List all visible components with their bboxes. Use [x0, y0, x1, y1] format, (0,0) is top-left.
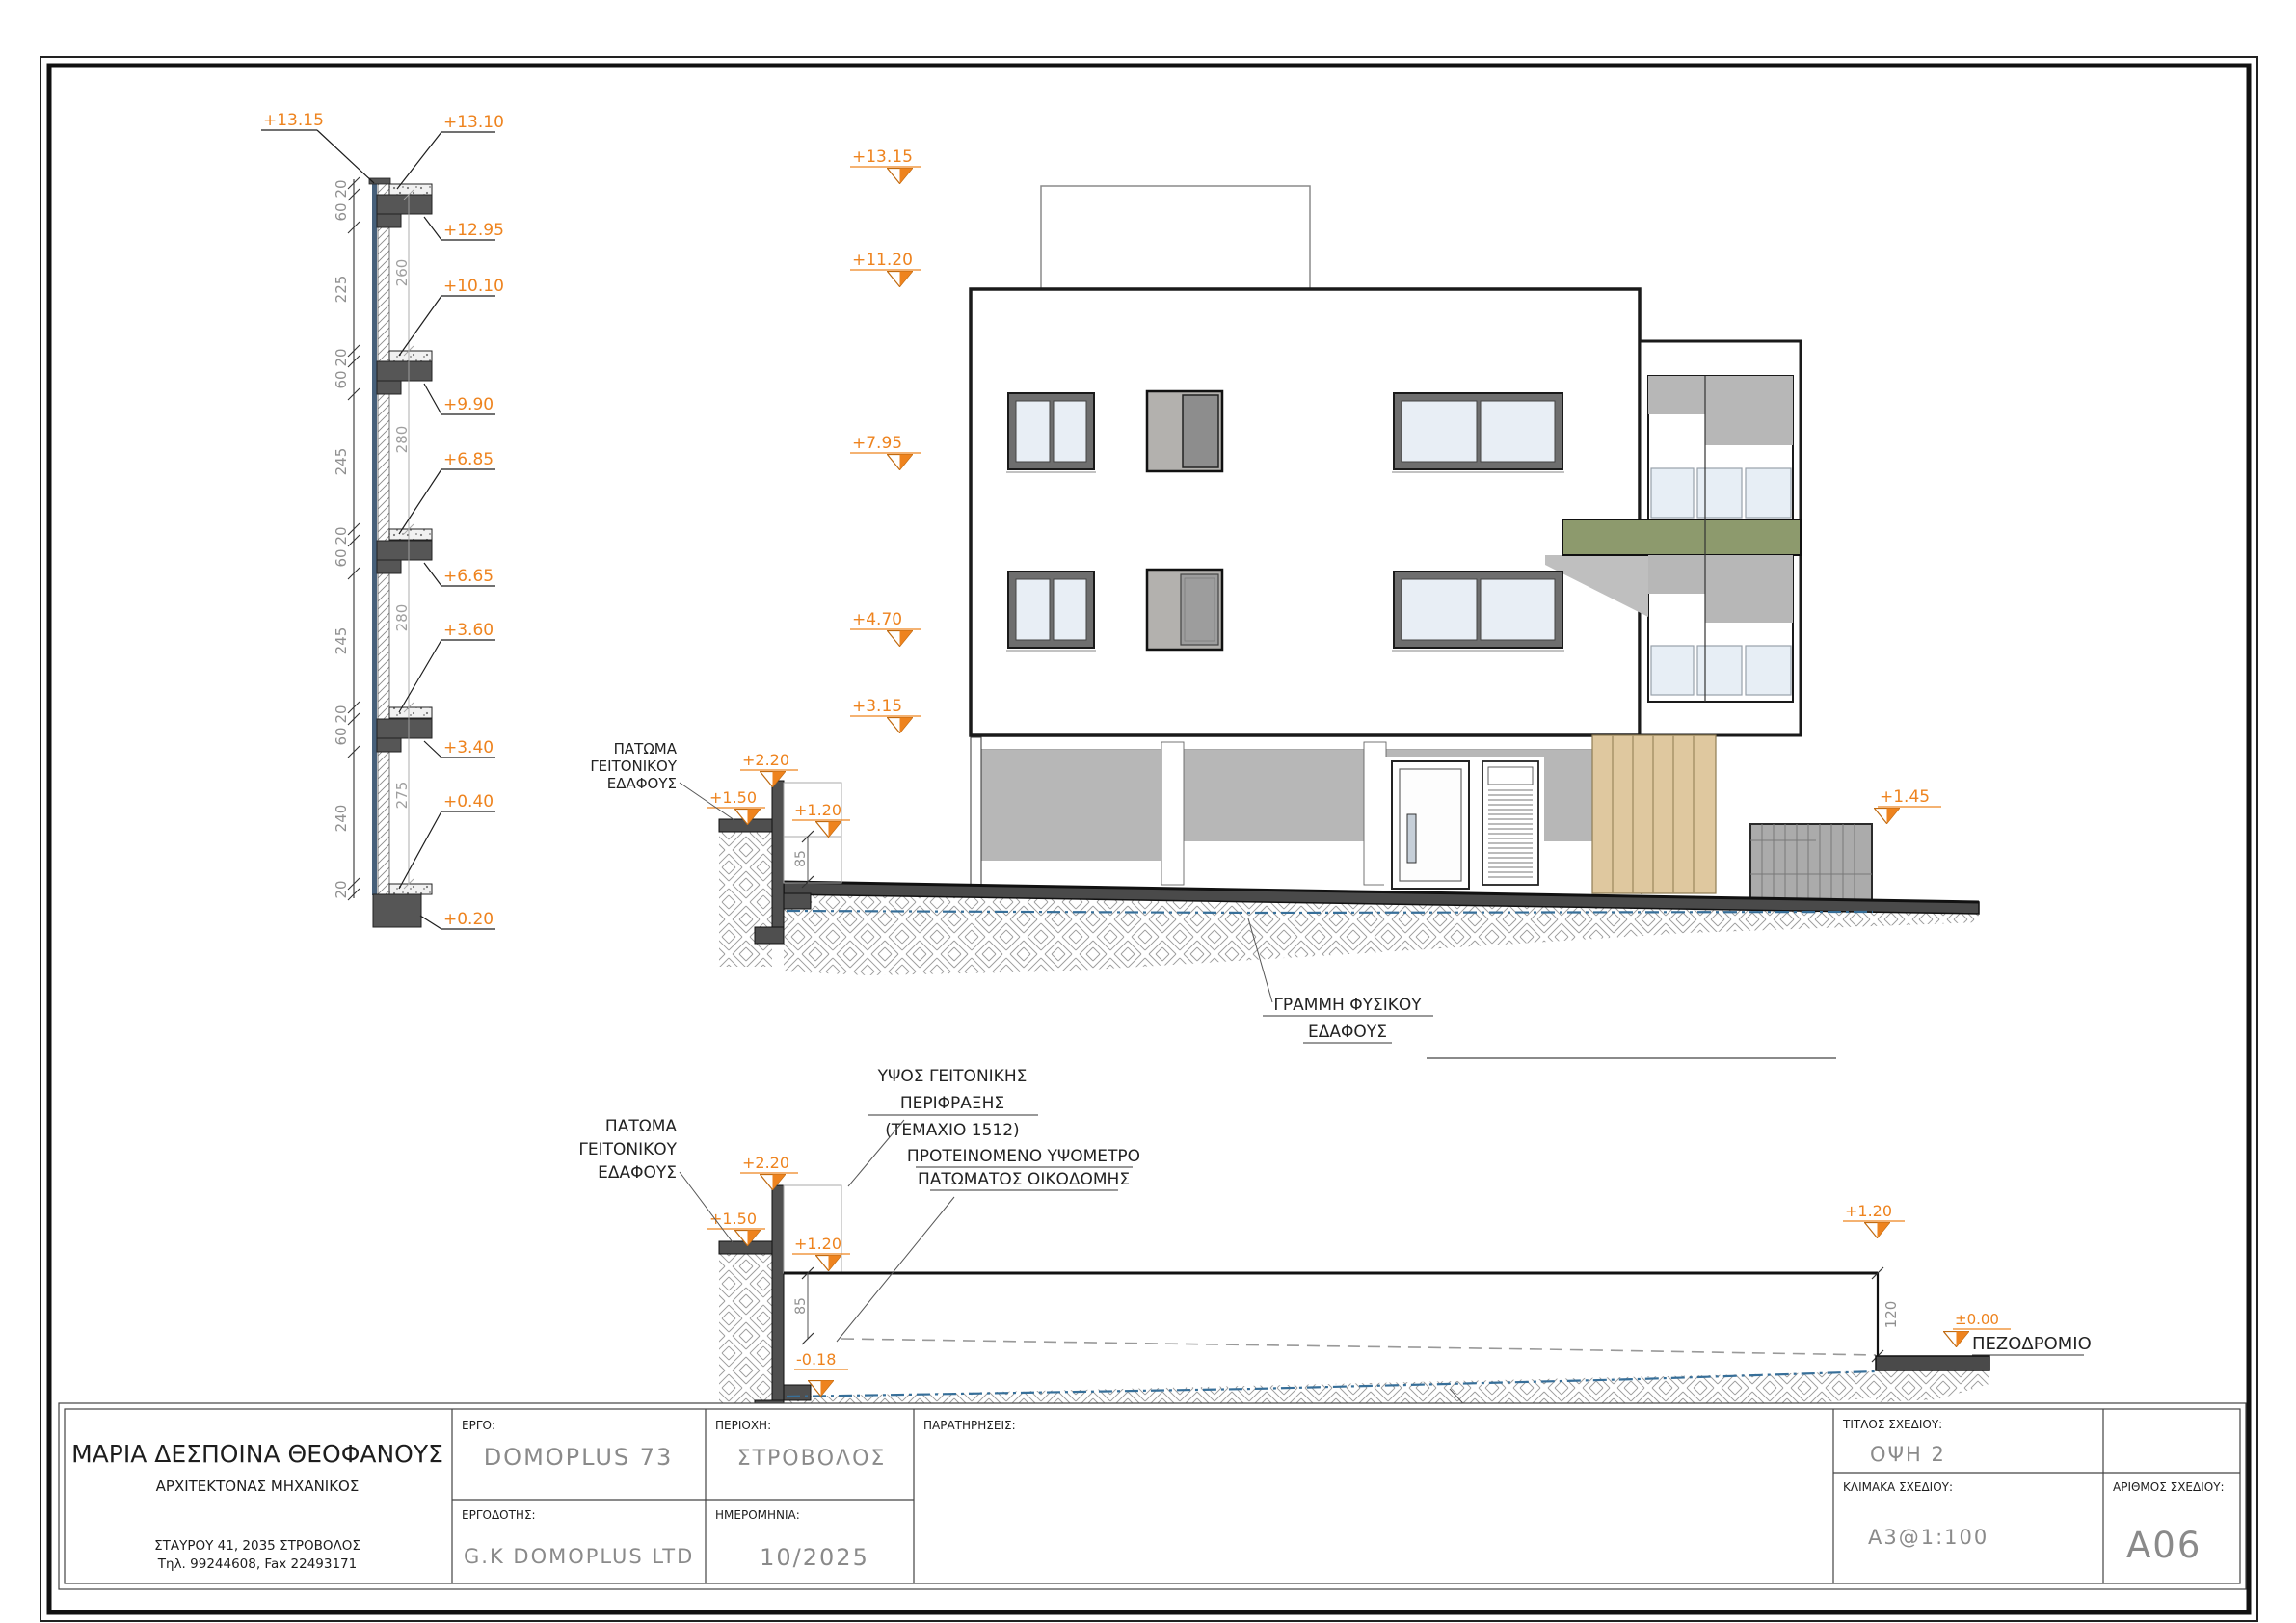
- proposed-ground-dashed-line: [841, 1339, 1876, 1355]
- section2-markers: +2.20 +1.50 +1.20 -0.18 +1.20 ±0.00: [707, 1154, 2011, 1397]
- dim-85: 85: [793, 1267, 814, 1344]
- level-flag-icon: [888, 631, 913, 647]
- main-facade: [971, 289, 1640, 735]
- balcony-divider-slab: [1562, 519, 1801, 555]
- window-lower-right: [1392, 572, 1564, 651]
- infill-wall: [981, 750, 1161, 861]
- annotation-text: ΕΔΑΦΟΥΣ: [1308, 1023, 1387, 1042]
- field-label: ΠΕΡΙΟΧΗ:: [715, 1419, 771, 1432]
- infill-wall: [1184, 750, 1364, 841]
- balcony-wall-panel: [1648, 376, 1705, 414]
- level-flag-icon: [816, 1256, 841, 1271]
- dim-text: 60: [333, 727, 350, 745]
- level-marker: +4.70: [852, 610, 902, 629]
- title-block: ΜΑΡΙΑ ΔΕΣΠΟΙΝΑ ΘΕΟΦΑΝΟΥΣ ΑΡΧΙΤΕΚΤΟΝΑΣ ΜΗ…: [59, 1403, 2246, 1589]
- column: [1364, 742, 1386, 885]
- notes-cell: ΠΑΡΑΤΗΡΗΣΕΙΣ:: [923, 1419, 1016, 1432]
- level-marker: +1.50: [709, 1210, 757, 1228]
- column: [1161, 742, 1184, 885]
- annotation-text: ΓΕΙΤΟΝΙΚΟΥ: [578, 1140, 677, 1159]
- level-callout: +12.95: [443, 221, 504, 240]
- entrance-door: [1392, 761, 1469, 889]
- louver-panel: [1482, 761, 1538, 885]
- dim-text: 20: [333, 705, 350, 723]
- architect-name: ΜΑΡΙΑ ΔΕΣΠΟΙΝΑ ΘΕΟΦΑΝΟΥΣ: [71, 1440, 443, 1468]
- balcony-wall-panel: [1705, 555, 1793, 623]
- level-marker: +1.45: [1880, 787, 1930, 807]
- client-name: G.K DOMOPLUS LTD: [464, 1545, 694, 1568]
- level-flag-icon: [1875, 809, 1900, 824]
- drawing-scale: A3@1:100: [1868, 1526, 1989, 1549]
- dim-text: 20: [333, 179, 350, 198]
- footing: [373, 894, 421, 927]
- balcony-glass-railing: [1651, 646, 1791, 695]
- drawing-sheet: 20 60 225 20 60 245 20 60 245 20 60 240 …: [0, 0, 2296, 1623]
- annotation-text: ΠΡΟΤΕΙΝΟΜΕΝΟ ΥΨΟΜΕΤΡΟ: [907, 1147, 1140, 1166]
- boundary-reference-box: [784, 783, 841, 883]
- level-callout: +6.85: [443, 450, 494, 469]
- label-ypsos-perifraksis: ΥΨΟΣ ΓΕΙΤΟΝΙΚΗΣ ΠΕΡΙΦΡΑΞΗΣ (ΤΕΜΑΧΙΟ 1512…: [848, 1067, 1038, 1186]
- label-proteinomeno-ypsometro: ΠΡΟΤΕΙΝΟΜΕΝΟ ΥΨΟΜΕΤΡΟ ΠΑΤΩΜΑΤΟΣ ΟΙΚΟΔΟΜΗ…: [837, 1147, 1140, 1342]
- dim-text: 20: [333, 526, 350, 545]
- level-callout: +10.10: [443, 277, 504, 296]
- level-callout: +0.40: [443, 792, 494, 811]
- balcony-glass-railing: [1651, 468, 1791, 518]
- elevation-drawing-a06: 20 60 225 20 60 245 20 60 245 20 60 240 …: [0, 0, 2296, 1623]
- architect-address: ΣΤΑΥΡΟΥ 41, 2035 ΣΤΡΟΒΟΛΟΣ: [154, 1538, 360, 1554]
- dim-text: 260: [393, 259, 411, 287]
- pilaster: [971, 737, 981, 885]
- window-upper-left: [1006, 393, 1096, 472]
- level-callout: +3.40: [443, 738, 494, 758]
- field-label: ΠΑΡΑΤΗΡΗΣΕΙΣ:: [923, 1419, 1016, 1432]
- architect-title: ΑΡΧΙΤΕΚΤΟΝΑΣ ΜΗΧΑΝΙΚΟΣ: [156, 1477, 360, 1495]
- architect-phone: Τηλ. 99244608, Fax 22493171: [157, 1556, 357, 1572]
- sidewalk-slab: [1876, 1356, 1989, 1370]
- level-marker: -0.18: [796, 1350, 836, 1369]
- building-elevation: +13.15 +11.20 +7.95 +4.70 +3.15 +1.45: [850, 147, 1941, 901]
- field-label: ΤΙΤΛΟΣ ΣΧΕΔΙΟΥ:: [1842, 1418, 1942, 1431]
- field-label: ΗΜΕΡΟΜΗΝΙΑ:: [715, 1508, 800, 1522]
- field-label: ΑΡΙΘΜΟΣ ΣΧΕΔΙΟΥ:: [2113, 1480, 2225, 1494]
- level-marker: +2.20: [742, 1154, 789, 1172]
- earth-hatch: [1876, 1370, 1989, 1402]
- annotation-text: ΕΔΑΦΟΥΣ: [598, 1163, 677, 1183]
- site-fence: [1750, 824, 1872, 901]
- level-callout: +0.20: [443, 910, 494, 929]
- level-flag-icon: [816, 822, 841, 838]
- earth-hatch: [719, 832, 772, 967]
- annotation-text: ΠΑΤΩΜΑ: [605, 1117, 677, 1136]
- dim-text: 275: [393, 782, 411, 810]
- dim-text: 85: [793, 1297, 809, 1315]
- level-marker: +1.20: [794, 801, 841, 819]
- level-flag-icon: [888, 272, 913, 287]
- drawing-title: ΟΨΗ 2: [1870, 1443, 1946, 1466]
- level-callout: +13.10: [443, 113, 504, 132]
- balcony-wall-panel: [1648, 555, 1705, 594]
- annotation-text: ΠΕΖΟΔΡΟΜΙΟ: [1972, 1334, 2092, 1354]
- level-callout: +9.90: [443, 395, 494, 414]
- annotation-text: ΠΑΤΩΜΑ: [614, 740, 678, 758]
- dim-text: 120: [1882, 1301, 1900, 1329]
- dim-text: 60: [333, 370, 350, 388]
- level-marker: +11.20: [852, 251, 913, 270]
- dim-text: 245: [333, 448, 350, 476]
- dim-text: 280: [393, 604, 411, 632]
- outer-dimension-texts: 20 60 225 20 60 245 20 60 245 20 60 240 …: [333, 179, 350, 898]
- dim-text: 225: [333, 276, 350, 304]
- level-flag-icon: [809, 1381, 834, 1397]
- annotation-text: ΓΡΑΜΜΗ ΦΥΣΙΚΟΥ: [1273, 996, 1422, 1015]
- dim-text: 85: [793, 850, 809, 867]
- door-handle: [1407, 814, 1416, 863]
- annotation-text: ΥΨΟΣ ΓΕΙΤΟΝΙΚΗΣ: [877, 1067, 1028, 1086]
- balcony-door-upper: [1147, 391, 1222, 471]
- level-marker: ±0.00: [1955, 1311, 1999, 1328]
- field-label: ΚΛΙΜΑΚΑ ΣΧΕΔΙΟΥ:: [1843, 1480, 1953, 1494]
- drawing-number: A06: [2126, 1525, 2202, 1566]
- level-marker: +1.50: [709, 788, 757, 807]
- balcony-door-lower: [1147, 570, 1222, 650]
- field-label: ΕΡΓΟΔΟΤΗΣ:: [462, 1508, 536, 1522]
- dim-text: 20: [333, 348, 350, 366]
- level-marker: +3.15: [852, 697, 902, 716]
- timber-slat-screen: [1592, 735, 1716, 893]
- dim-text: 60: [333, 202, 350, 221]
- dim-85: 85: [793, 831, 814, 888]
- annotation-text: ΠΕΡΙΦΡΑΞΗΣ: [900, 1094, 1004, 1113]
- annotation-text: ΠΑΤΩΜΑΤΟΣ ΟΙΚΟΔΟΜΗΣ: [918, 1170, 1130, 1189]
- level-flag-icon: [1944, 1332, 1969, 1347]
- field-label: ΕΡΓΟ:: [462, 1419, 495, 1432]
- dim-text: 280: [393, 426, 411, 454]
- level-callout: +6.65: [443, 567, 494, 586]
- level-callout: +13.15: [263, 111, 324, 130]
- window-upper-right: [1392, 393, 1564, 472]
- level-flag-icon: [1865, 1223, 1890, 1238]
- wall-hatch: [378, 183, 389, 894]
- annotation-text: (ΤΕΜΑΧΙΟ 1512): [885, 1121, 1019, 1140]
- dim-text: 60: [333, 548, 350, 567]
- level-marker: +1.20: [1845, 1202, 1892, 1220]
- level-marker: +7.95: [852, 434, 902, 453]
- location-name: ΣΤΡΟΒΟΛΟΣ: [737, 1447, 887, 1471]
- ground-floor: [971, 735, 1872, 901]
- dim-text: 245: [333, 627, 350, 655]
- wall-inner-face-line: [372, 182, 377, 895]
- level-marker: +1.20: [794, 1235, 841, 1253]
- project-name: DOMOPLUS 73: [484, 1444, 674, 1471]
- level-flag-icon: [888, 455, 913, 470]
- date-value: 10/2025: [760, 1544, 869, 1571]
- balcony-wall-panel: [1705, 376, 1793, 445]
- level-flag-icon: [888, 718, 913, 733]
- window-lower-left: [1006, 572, 1096, 651]
- level-callout: +3.60: [443, 621, 494, 640]
- annotation-text: ΕΔΑΦΟΥΣ: [607, 775, 677, 792]
- annotation-text: ΓΕΙΤΟΝΙΚΟΥ: [590, 758, 678, 775]
- wall-section-detail: 20 60 225 20 60 245 20 60 245 20 60 240 …: [261, 111, 504, 929]
- dim-text: 240: [333, 805, 350, 833]
- dim-text: 20: [333, 880, 350, 898]
- level-flag-icon: [888, 169, 913, 184]
- dim-120: 120: [1872, 1267, 1900, 1362]
- level-marker: +13.15: [852, 147, 913, 167]
- level-marker: +2.20: [742, 751, 789, 769]
- stair-core: [1041, 186, 1310, 291]
